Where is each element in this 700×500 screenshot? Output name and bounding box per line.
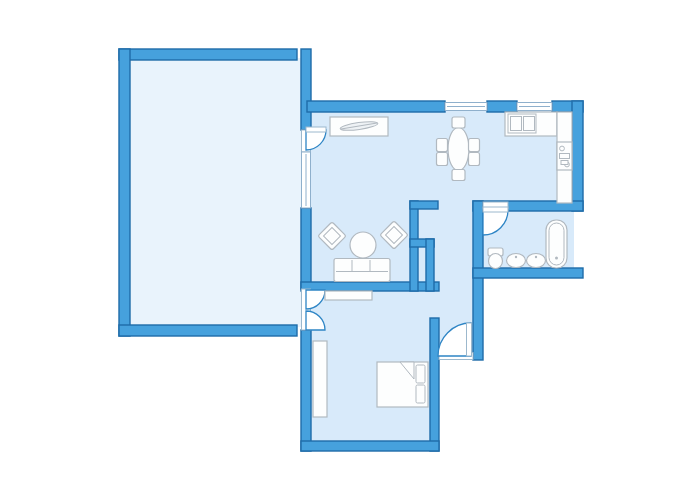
wall-north-2 — [487, 101, 517, 112]
dining-chair-bottom — [452, 170, 465, 181]
wall-terrace-bottom — [119, 325, 297, 336]
wall-bedroom-bottom — [301, 441, 439, 451]
dining-chair-right-1 — [469, 139, 480, 152]
floor-plan-canvas — [0, 0, 700, 500]
bed-pillow-1 — [416, 365, 425, 383]
wall-west-upper — [301, 49, 311, 130]
bathroom-sink-2-faucet — [535, 256, 537, 258]
entrance-door-leaf — [467, 323, 472, 356]
dining-chair-left-1 — [437, 139, 448, 152]
dining-table — [448, 128, 469, 171]
coffee-table — [350, 232, 376, 258]
bed-pillow-2 — [416, 385, 425, 403]
wall-terrace-left — [119, 49, 130, 336]
bedroom-dresser — [325, 291, 372, 300]
wall-west-lower — [301, 330, 311, 451]
terrace-door-leaf — [306, 127, 326, 132]
terrace-room-floor — [128, 58, 303, 327]
dining-chair-right-2 — [469, 153, 480, 166]
stove-control-2 — [561, 161, 568, 165]
stove-burner-1 — [560, 146, 565, 151]
kitchen-sink-basin-1 — [511, 117, 522, 131]
bathroom-door-leaf — [483, 207, 508, 212]
bathroom-sink-1-faucet — [515, 256, 517, 258]
sofa — [334, 259, 390, 282]
floor-plan — [0, 0, 700, 500]
dining-chair-left-2 — [437, 153, 448, 166]
wall-closet-top-arm — [410, 201, 438, 209]
wall-bathroom-bottom — [473, 268, 583, 278]
wall-terrace-top — [119, 49, 297, 60]
bathroom-sink-2 — [527, 254, 546, 268]
wall-east-upper — [572, 101, 583, 211]
kitchen-sink-basin-2 — [524, 117, 535, 131]
wall-bathroom-left — [473, 201, 483, 360]
bathroom-sink-1 — [507, 254, 526, 268]
stove-control-1 — [560, 154, 570, 159]
dining-chair-top — [452, 117, 465, 128]
wardrobe — [313, 341, 327, 417]
wall-west-mid — [301, 208, 311, 289]
wall-north-1 — [307, 101, 445, 112]
wall-bedroom-east — [430, 318, 439, 451]
wall-closet-right — [426, 239, 434, 291]
bathtub-drain — [555, 257, 558, 260]
toilet-bowl — [489, 254, 503, 269]
